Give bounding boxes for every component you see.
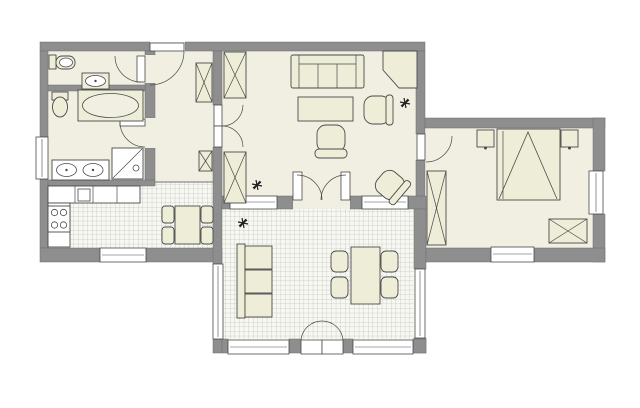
dining-bench-cushion	[245, 270, 272, 293]
wall	[40, 51, 48, 137]
dining-chair	[381, 251, 398, 272]
wall	[222, 339, 228, 353]
wc-door-leaf	[137, 56, 145, 82]
wall	[408, 196, 426, 209]
dining-chair	[331, 251, 348, 272]
hall-door-leaf	[214, 126, 222, 147]
kitchen-counter	[48, 186, 140, 203]
wall	[213, 147, 222, 264]
sink-drain	[65, 169, 67, 171]
kitchen-chair	[162, 206, 174, 223]
armchair	[317, 125, 345, 152]
door-opening	[145, 118, 155, 148]
living-dining-door-leaf	[341, 172, 350, 200]
stove-burner	[60, 222, 66, 228]
dining-bench-back	[237, 244, 245, 318]
nightstand	[561, 130, 578, 147]
dining-chair	[381, 277, 398, 298]
wall	[414, 209, 426, 269]
dining-chair	[331, 277, 348, 298]
nightstand-knob	[484, 147, 487, 150]
tile-floor-kitchen	[70, 203, 138, 248]
stove-burner	[51, 209, 57, 215]
wall	[146, 248, 222, 262]
wall	[185, 42, 425, 51]
armchair-back	[386, 95, 393, 125]
nightstand-knob	[568, 147, 571, 150]
wall	[145, 51, 155, 55]
sink-drain	[92, 169, 94, 171]
door-opening	[145, 55, 155, 83]
kitchen-chair	[201, 227, 213, 244]
wall	[413, 339, 426, 353]
wall	[289, 339, 301, 353]
bedroom-door-leaf	[417, 134, 425, 160]
bathtub-basin	[83, 94, 139, 118]
wall	[213, 51, 222, 105]
toilet	[49, 55, 56, 69]
wall	[426, 248, 491, 262]
kitchen-chair	[162, 227, 174, 244]
wall	[40, 248, 100, 262]
stove	[48, 206, 70, 232]
dining-table	[351, 247, 380, 304]
wall	[213, 339, 222, 353]
bed	[497, 129, 560, 200]
nightstand	[477, 130, 494, 147]
hand-basin-drain	[94, 80, 96, 82]
living-dining-door-leaf	[293, 172, 302, 200]
wall	[425, 118, 605, 128]
hall-door-leaf	[214, 105, 222, 126]
kitchen-sink	[78, 189, 90, 201]
floor-plan-svg	[0, 0, 640, 408]
wall	[277, 196, 293, 209]
terrace-door-leaf	[322, 340, 343, 354]
toilet	[60, 58, 73, 67]
wall	[40, 42, 150, 51]
kitchen-chair	[201, 206, 213, 223]
wall	[145, 83, 155, 118]
armchair-back	[315, 149, 347, 158]
sofa	[291, 55, 364, 88]
wall	[534, 248, 605, 262]
wall	[343, 339, 353, 353]
bidet	[53, 97, 68, 117]
dining-bench-cushion	[245, 246, 272, 269]
floor-plan-image	[0, 0, 640, 408]
terrace-door-leaf	[301, 340, 322, 354]
stove-burner	[60, 209, 66, 215]
window	[491, 247, 534, 262]
wall	[145, 148, 155, 180]
shower-drain	[133, 165, 139, 171]
dining-bench-cushion	[245, 294, 272, 317]
wall	[593, 118, 605, 171]
kitchen-table	[175, 206, 200, 244]
wall	[48, 180, 155, 186]
coffee-table	[298, 97, 353, 121]
wall	[416, 160, 425, 196]
stove-burner	[51, 222, 57, 228]
entry-door-leaf	[150, 43, 184, 51]
wall	[350, 196, 362, 209]
wall	[40, 179, 48, 248]
